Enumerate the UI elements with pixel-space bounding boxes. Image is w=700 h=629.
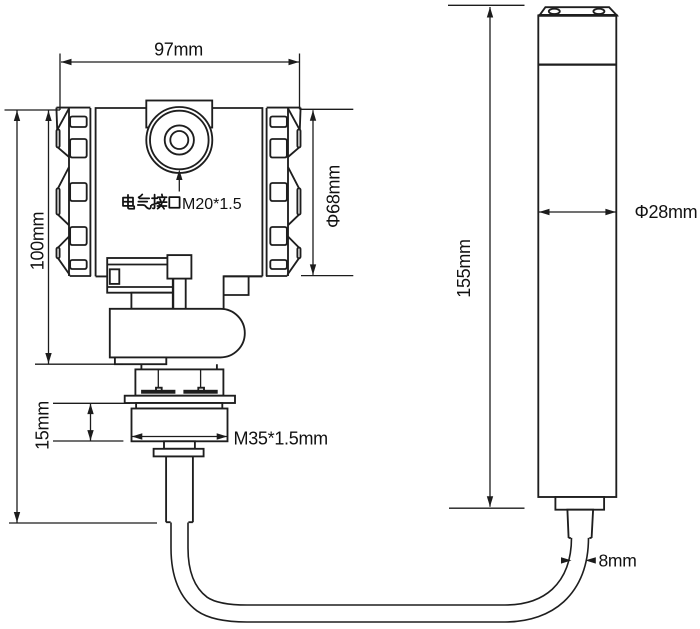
svg-text:M20*1.5: M20*1.5 bbox=[182, 196, 242, 213]
svg-text:8mm: 8mm bbox=[599, 551, 637, 571]
svg-text:Φ68mm: Φ68mm bbox=[324, 165, 344, 228]
svg-text:100mm: 100mm bbox=[28, 212, 48, 271]
svg-text:155mm: 155mm bbox=[454, 239, 474, 298]
svg-text:Φ28mm: Φ28mm bbox=[635, 202, 698, 222]
svg-text:15mm: 15mm bbox=[33, 401, 53, 450]
svg-text:97mm: 97mm bbox=[154, 40, 203, 60]
svg-text:M35*1.5mm: M35*1.5mm bbox=[234, 429, 328, 449]
